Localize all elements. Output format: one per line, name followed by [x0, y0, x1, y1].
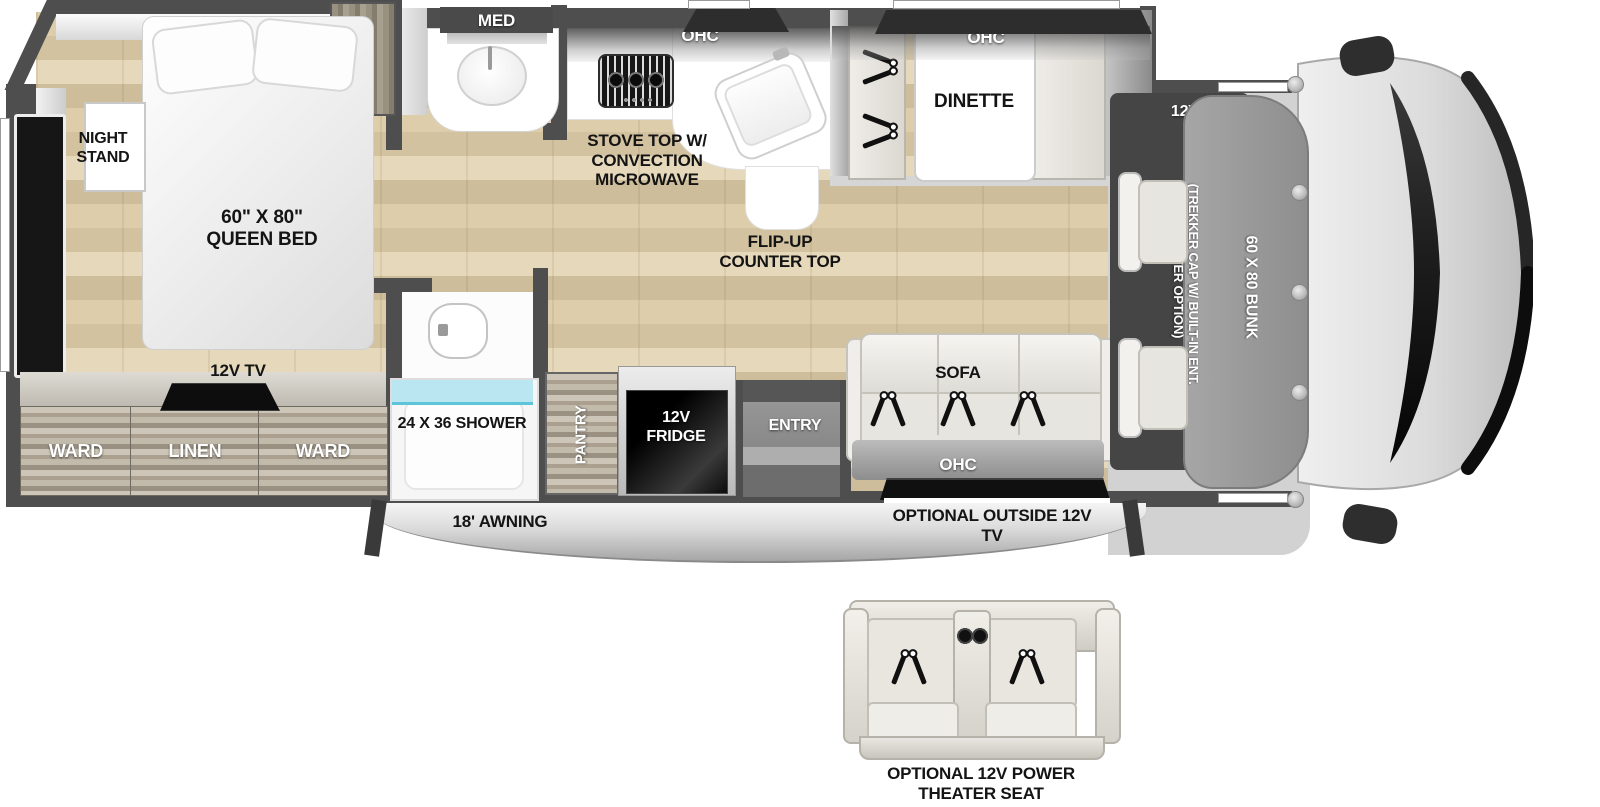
- sofa-ohc-label: OHC: [908, 455, 1008, 475]
- wardrobe-left: WARD: [20, 406, 132, 496]
- outside-tv-label: OPTIONAL OUTSIDE 12V TV: [892, 506, 1092, 545]
- shower-label: 24 X 36 SHOWER: [397, 415, 527, 434]
- pantry-label: PANTRY: [572, 390, 589, 480]
- linen-label: LINEN: [168, 441, 221, 462]
- awning-end-cap: [364, 499, 387, 557]
- passenger-seat: [1118, 338, 1186, 434]
- med-shelf: [447, 33, 547, 44]
- bath-faucet-icon: [488, 46, 492, 70]
- driver-seat: [1118, 172, 1186, 268]
- wall-segment: [543, 123, 567, 140]
- bedroom-tv-label: 12V TV: [188, 361, 288, 381]
- wardrobe-right: WARD: [258, 406, 388, 496]
- slide-topper-awning: [683, 8, 789, 32]
- wardrobe-left-label: WARD: [49, 441, 103, 462]
- seatbelt-icon: [1006, 388, 1050, 430]
- rivet: [1291, 384, 1308, 401]
- theater-armrest: [843, 608, 869, 744]
- theater-skirt: [859, 736, 1105, 760]
- slide-indicator-bar: [1218, 493, 1288, 503]
- dinette-label: DINETTE: [904, 91, 1044, 113]
- entry-step: [743, 465, 840, 497]
- slide-indicator-bar: [893, 0, 1120, 9]
- flip-up-counter-label: FLIP-UP COUNTER TOP: [715, 232, 845, 271]
- seatbelt-icon: [887, 646, 931, 688]
- fridge-label: 12V FRIDGE: [641, 409, 711, 446]
- outside-tv: [880, 478, 1110, 500]
- slide-indicator-bar: [1218, 82, 1288, 92]
- bunk-label: 60 X 80 BUNK: [1241, 187, 1260, 387]
- theater-seat-label: OPTIONAL 12V POWER THEATER SEAT: [851, 764, 1111, 803]
- awning-label: 18' AWNING: [430, 512, 570, 532]
- night-stand-label: NIGHT STAND: [53, 130, 153, 167]
- flip-up-counter: [745, 166, 819, 230]
- entry-label: ENTRY: [750, 417, 840, 436]
- seatbelt-icon: [866, 388, 910, 430]
- linen-cabinet: LINEN: [130, 406, 260, 496]
- rivet: [1287, 76, 1304, 93]
- med-cabinet-label: MED: [440, 11, 553, 31]
- pillow: [251, 17, 359, 93]
- bath-wall-face: [402, 8, 427, 115]
- entry-step: [743, 380, 840, 402]
- bath-sink-icon: [457, 46, 527, 106]
- entry-step: [743, 447, 840, 465]
- sofa-label: SOFA: [908, 363, 1008, 383]
- rivet: [1287, 491, 1304, 508]
- theater-seat: [843, 596, 1121, 762]
- slide-indicator-bar: [688, 0, 750, 9]
- rivet: [1291, 284, 1308, 301]
- slide-topper-awning: [875, 10, 1152, 34]
- shower-pan-inner: [404, 400, 524, 490]
- queen-bed-label: 60" X 80" QUEEN BED: [187, 207, 337, 251]
- rivet: [1291, 184, 1308, 201]
- theater-armrest: [1095, 608, 1121, 744]
- toilet-flush: [438, 324, 448, 336]
- stove-top-icon: [598, 54, 674, 108]
- mirror-bottom-icon: [1340, 502, 1399, 547]
- wardrobe-right-label: WARD: [296, 441, 350, 462]
- slide-indicator-bar: [0, 118, 10, 372]
- stove-label: STOVE TOP W/ CONVECTION MICROWAVE: [572, 131, 722, 190]
- toilet-icon: [428, 303, 488, 359]
- seatbelt-icon: [936, 388, 980, 430]
- seatbelt-icon: [1005, 646, 1049, 688]
- bedroom-tv: [160, 383, 280, 411]
- pillow: [150, 18, 259, 96]
- rv-floorplan: CLOSET 60" X 80" QUEEN BED NIGHT STAND W…: [0, 0, 1600, 807]
- shower-glass: [392, 380, 533, 405]
- seatbelt-icon: [859, 109, 901, 153]
